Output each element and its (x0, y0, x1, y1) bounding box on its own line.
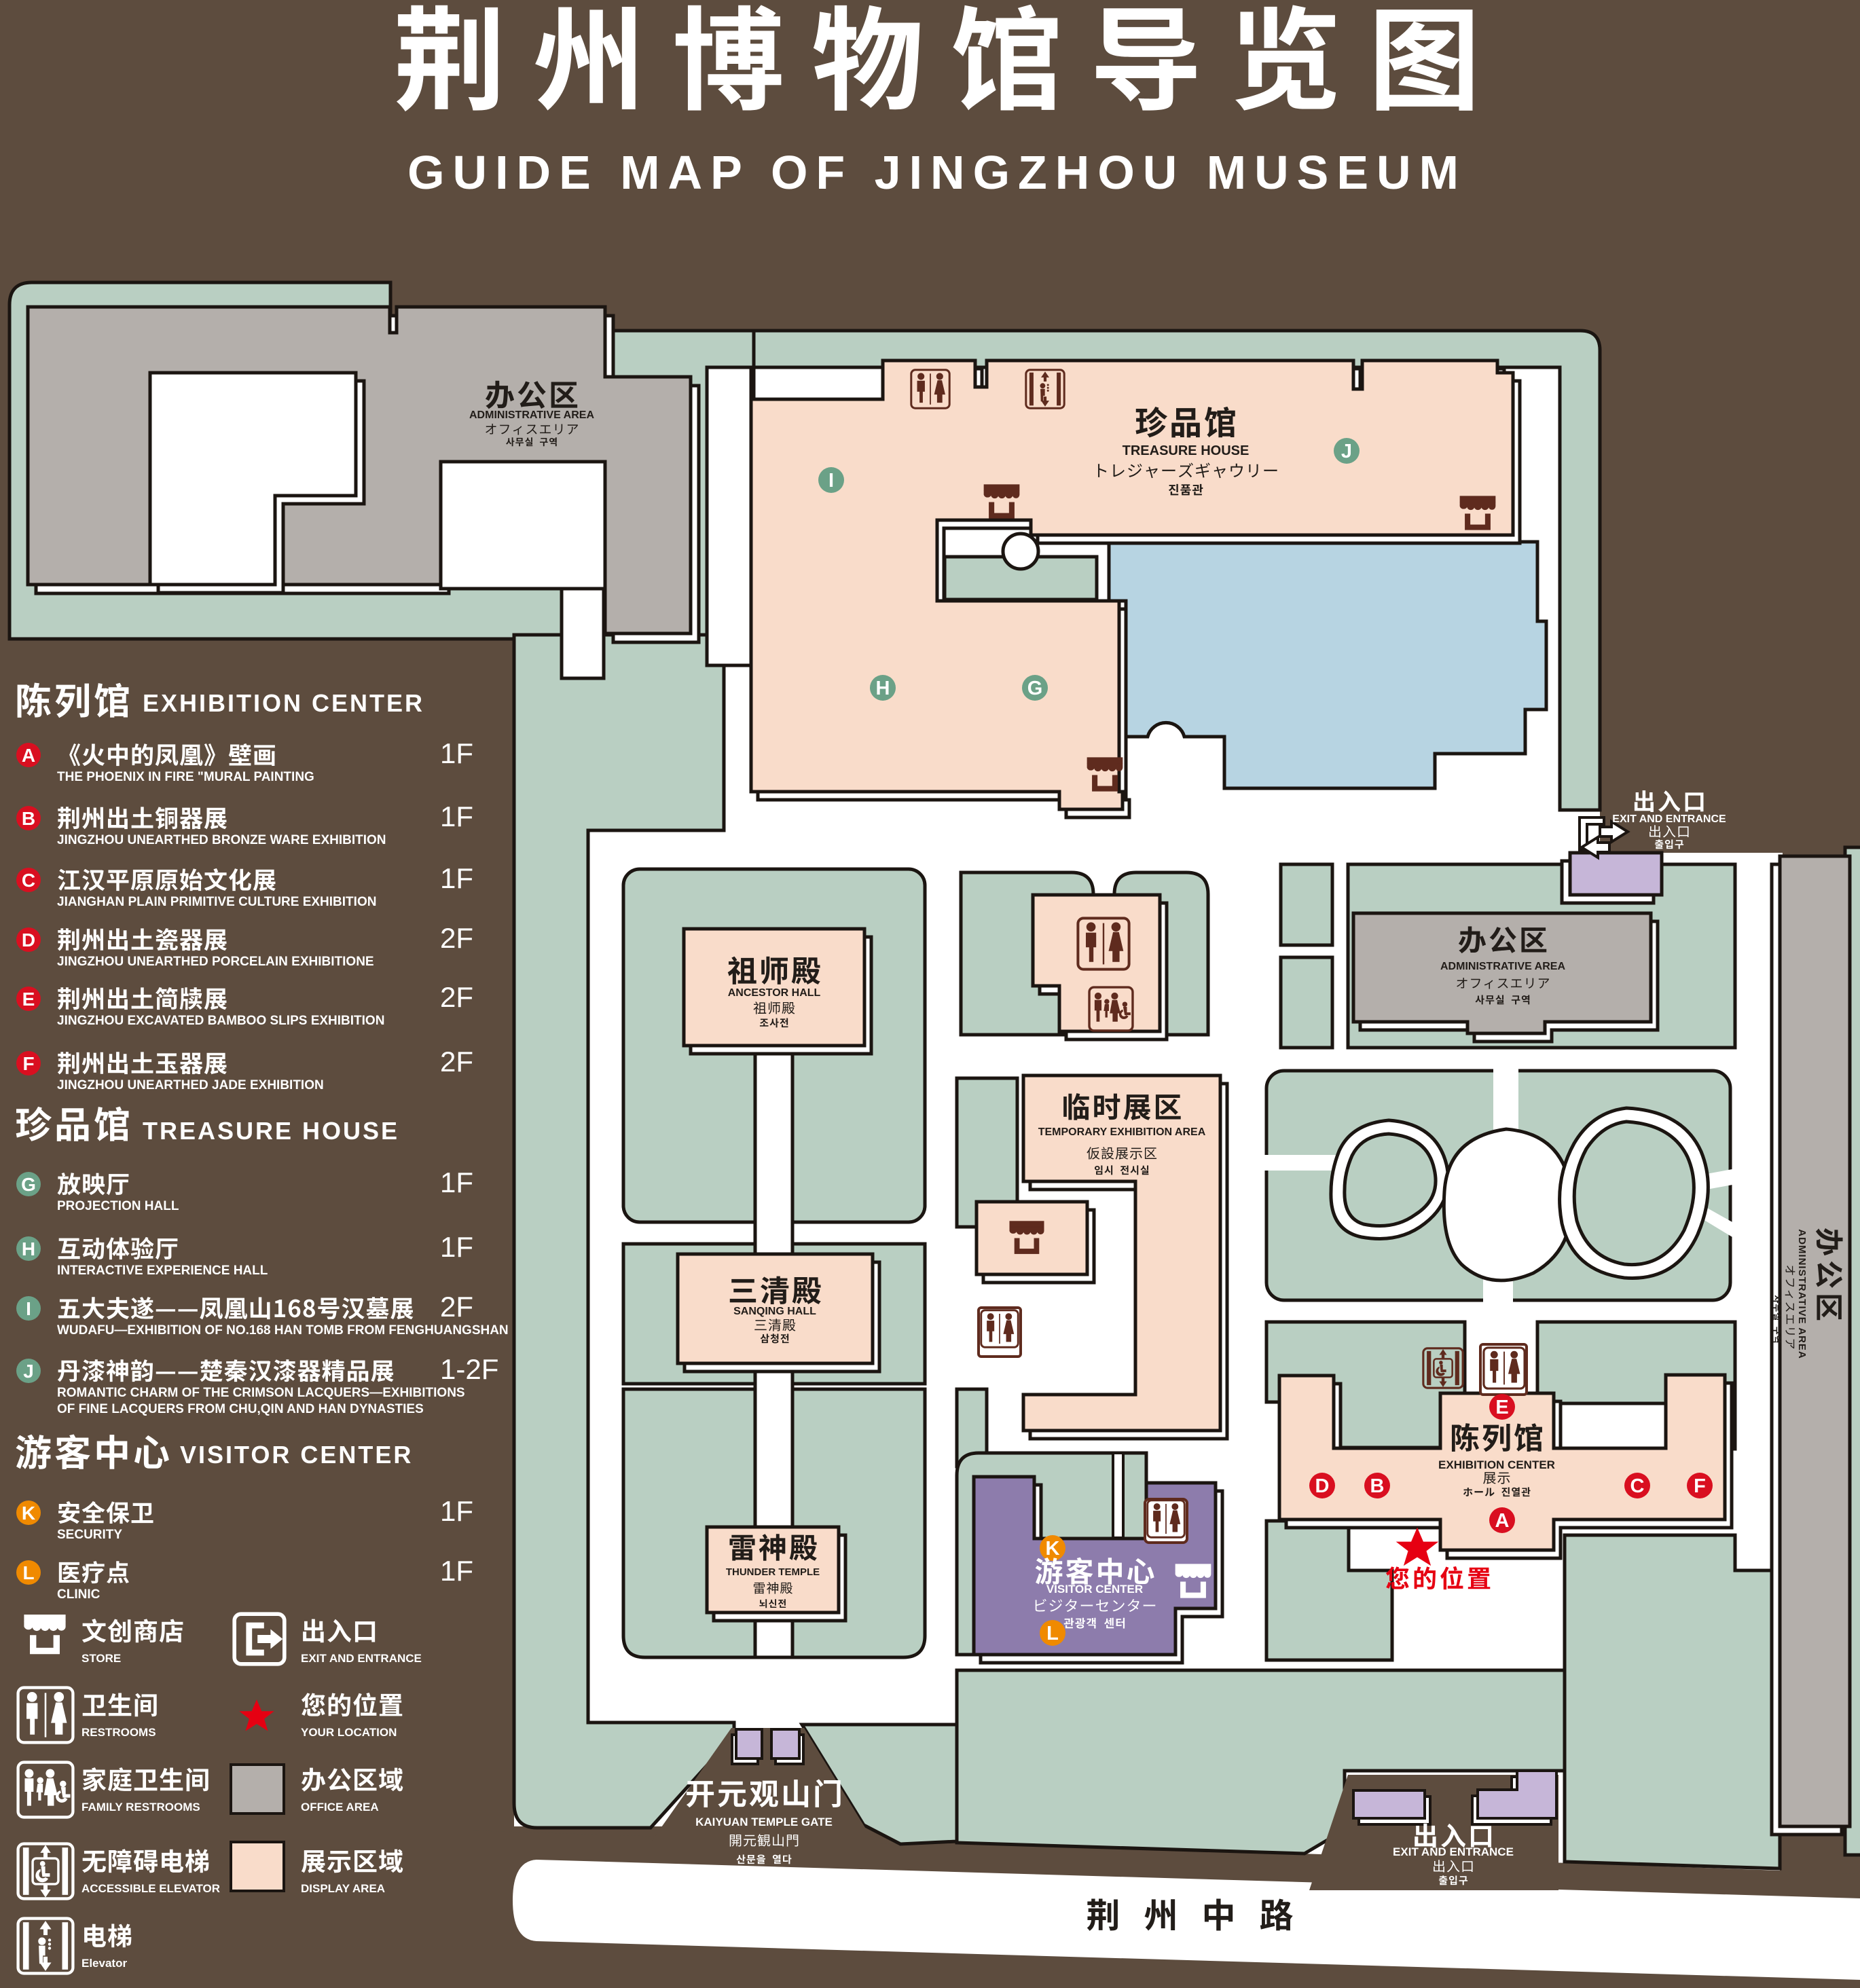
svg-text:EXIT AND ENTRANCE: EXIT AND ENTRANCE (1612, 813, 1726, 825)
svg-text:J: J (23, 1361, 34, 1382)
svg-text:ADMINISTRATIVE AREA: ADMINISTRATIVE AREA (469, 409, 594, 421)
svg-text:L: L (1046, 1623, 1059, 1644)
svg-text:PROJECTION HALL: PROJECTION HALL (57, 1199, 179, 1213)
svg-text:EXHIBITION CENTER: EXHIBITION CENTER (1438, 1458, 1555, 1471)
svg-text:JINGZHOU UNEARTHED PORCELAIN E: JINGZHOU UNEARTHED PORCELAIN EXHIBITIONE (57, 955, 374, 969)
svg-text:CLINIC: CLINIC (57, 1587, 101, 1602)
svg-text:JINGZHOU UNEARTHED BRONZE WARE: JINGZHOU UNEARTHED BRONZE WARE EXHIBITIO… (57, 833, 386, 847)
svg-text:ROMANTIC CHARM OF THE CRIMSON: ROMANTIC CHARM OF THE CRIMSON LACQUERS—E… (57, 1386, 465, 1400)
svg-text:K: K (1046, 1538, 1060, 1560)
svg-text:1F: 1F (440, 737, 473, 769)
svg-text:EXIT AND ENTRANCE: EXIT AND ENTRANCE (301, 1652, 422, 1665)
svg-text:THUNDER TEMPLE: THUNDER TEMPLE (726, 1566, 820, 1578)
svg-text:F: F (22, 1053, 34, 1074)
svg-text:1-2F: 1-2F (440, 1353, 498, 1385)
svg-text:JINGZHOU UNEARTHED JADE EXHIBI: JINGZHOU UNEARTHED JADE EXHIBITION (57, 1078, 324, 1092)
svg-text:THE PHOENIX IN FIRE "MURAL PAI: THE PHOENIX IN FIRE "MURAL PAINTING (57, 770, 314, 784)
svg-text:OFFICE AREA: OFFICE AREA (301, 1801, 379, 1814)
svg-text:ADMINISTRATIVE AREA: ADMINISTRATIVE AREA (1440, 961, 1565, 972)
svg-text:WUDAFU—EXHIBITION OF NO.168 HA: WUDAFU—EXHIBITION OF NO.168 HAN TOMB FRO… (57, 1323, 509, 1338)
svg-text:1F: 1F (440, 1555, 473, 1587)
svg-text:I: I (828, 470, 834, 492)
svg-text:1F: 1F (440, 1166, 473, 1198)
svg-text:1F: 1F (440, 862, 473, 894)
svg-text:G: G (1027, 678, 1043, 699)
svg-text:2F: 2F (440, 1291, 473, 1323)
svg-text:DISPLAY AREA: DISPLAY AREA (301, 1882, 385, 1895)
svg-text:ADMINISTRATIVE AREA: ADMINISTRATIVE AREA (1796, 1229, 1808, 1359)
svg-text:FAMILY RESTROOMS: FAMILY RESTROOMS (81, 1801, 200, 1814)
svg-text:RESTROOMS: RESTROOMS (81, 1726, 156, 1739)
svg-text:J: J (1341, 441, 1352, 462)
svg-text:2F: 2F (440, 922, 473, 954)
svg-text:A: A (1495, 1510, 1510, 1532)
svg-text:SECURITY: SECURITY (57, 1528, 122, 1542)
svg-text:YOUR LOCATION: YOUR LOCATION (301, 1726, 397, 1739)
svg-text:E: E (22, 989, 35, 1010)
svg-text:EXIT AND ENTRANCE: EXIT AND ENTRANCE (1393, 1845, 1514, 1858)
svg-text:JIANGHAN PLAIN PRIMITIVE CULTU: JIANGHAN PLAIN PRIMITIVE CULTURE EXHIBIT… (57, 895, 376, 909)
svg-text:JINGZHOU EXCAVATED BAMBOO SLIP: JINGZHOU EXCAVATED BAMBOO SLIPS EXHIBITI… (57, 1014, 384, 1028)
svg-text:ACCESSIBLE ELEVATOR: ACCESSIBLE ELEVATOR (81, 1882, 220, 1895)
svg-text:E: E (1495, 1397, 1508, 1418)
svg-text:C: C (1630, 1475, 1645, 1497)
svg-text:KAIYUAN TEMPLE GATE: KAIYUAN TEMPLE GATE (695, 1816, 833, 1828)
svg-text:2F: 2F (440, 1046, 473, 1078)
svg-text:B: B (22, 808, 35, 829)
svg-text:STORE: STORE (81, 1652, 121, 1665)
svg-text:TREASURE HOUSE: TREASURE HOUSE (143, 1117, 399, 1145)
svg-text:VISITOR CENTER: VISITOR CENTER (1046, 1583, 1143, 1596)
svg-text:I: I (26, 1298, 31, 1319)
svg-text:F: F (1694, 1475, 1706, 1497)
svg-text:D: D (1315, 1475, 1330, 1497)
svg-text:K: K (22, 1503, 35, 1524)
svg-text:SANQING HALL: SANQING HALL (733, 1306, 816, 1317)
svg-text:H: H (876, 678, 890, 699)
svg-text:2F: 2F (440, 981, 473, 1013)
svg-text:VISITOR CENTER: VISITOR CENTER (180, 1441, 413, 1469)
svg-text:EXHIBITION CENTER: EXHIBITION CENTER (143, 689, 424, 717)
svg-text:INTERACTIVE EXPERIENCE HALL: INTERACTIVE EXPERIENCE HALL (57, 1264, 268, 1278)
svg-text:1F: 1F (440, 1231, 473, 1263)
svg-text:B: B (1370, 1475, 1385, 1497)
svg-text:GUIDE MAP OF JINGZHOU MUSEUM: GUIDE MAP OF JINGZHOU MUSEUM (407, 146, 1467, 199)
svg-text:A: A (22, 745, 35, 766)
svg-text:C: C (22, 870, 35, 891)
svg-text:D: D (22, 929, 35, 951)
svg-text:1F: 1F (440, 800, 473, 832)
svg-text:OF FINE LACQUERS FROM CHU,QIN: OF FINE LACQUERS FROM CHU,QIN AND HAN DY… (57, 1402, 424, 1416)
svg-text:Elevator: Elevator (81, 1957, 127, 1970)
svg-text:G: G (21, 1174, 36, 1195)
svg-text:ANCESTOR HALL: ANCESTOR HALL (728, 987, 821, 999)
svg-text:1F: 1F (440, 1495, 473, 1527)
svg-text:TREASURE HOUSE: TREASURE HOUSE (1123, 443, 1250, 458)
svg-text:TEMPORARY EXHIBITION AREA: TEMPORARY EXHIBITION AREA (1038, 1126, 1206, 1138)
svg-text:H: H (22, 1238, 35, 1259)
svg-text:L: L (22, 1562, 34, 1583)
